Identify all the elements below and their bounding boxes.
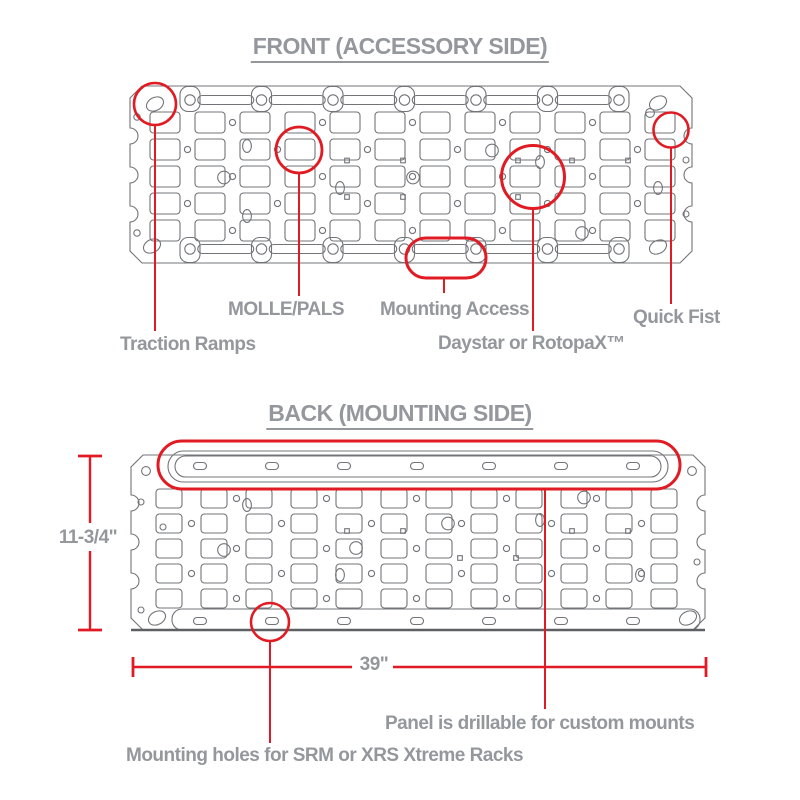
front-title: FRONT (ACCESSORY SIDE) <box>251 33 549 63</box>
front-panel-drawing <box>130 86 692 263</box>
label-panel-drillable: Panel is drillable for custom mounts <box>385 713 694 735</box>
back-title: BACK (MOUNTING SIDE) <box>266 400 533 430</box>
diagram-page: FRONT (ACCESSORY SIDE) BACK (MOUNTING SI… <box>0 0 800 800</box>
label-daystar-rotopax: Daystar or RotopaX™ <box>438 333 625 355</box>
label-traction-ramps: Traction Ramps <box>120 334 256 356</box>
label-width-dimension: 39" <box>343 654 405 676</box>
label-mounting-holes: Mounting holes for SRM or XRS Xtreme Rac… <box>126 745 523 767</box>
back-panel-drawing <box>131 451 705 630</box>
label-quick-fist: Quick Fist <box>633 307 720 329</box>
label-molle-pals: MOLLE/PALS <box>228 299 344 321</box>
label-height-dimension: 11-3/4" <box>40 527 136 549</box>
label-mounting-access: Mounting Access <box>380 299 529 321</box>
